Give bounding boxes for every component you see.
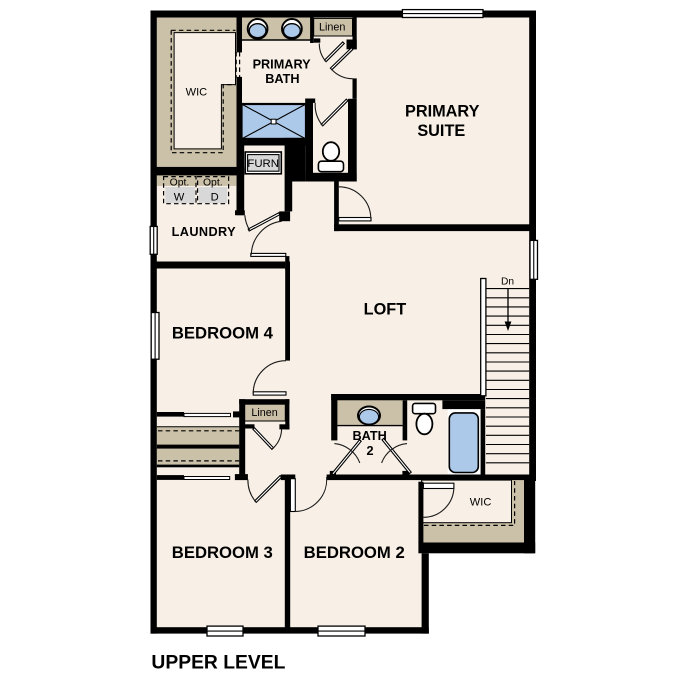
svg-text:Linen: Linen <box>319 22 345 34</box>
svg-text:2: 2 <box>366 444 373 458</box>
svg-text:W: W <box>174 191 185 203</box>
svg-text:Linen: Linen <box>251 407 277 419</box>
svg-text:Opt.: Opt. <box>203 178 223 189</box>
svg-text:WIC: WIC <box>470 496 492 508</box>
svg-text:PRIMARY: PRIMARY <box>405 102 480 120</box>
svg-text:Dn: Dn <box>501 277 514 288</box>
svg-text:BEDROOM 4: BEDROOM 4 <box>172 324 274 343</box>
svg-text:LOFT: LOFT <box>364 300 407 318</box>
svg-text:SUITE: SUITE <box>417 122 465 140</box>
svg-text:Opt.: Opt. <box>170 178 190 189</box>
svg-text:BEDROOM 2: BEDROOM 2 <box>304 543 405 562</box>
svg-text:BATH: BATH <box>352 429 386 443</box>
svg-text:WIC: WIC <box>186 87 208 99</box>
svg-text:FURN: FURN <box>247 158 279 170</box>
svg-text:BEDROOM 3: BEDROOM 3 <box>172 543 273 562</box>
svg-text:LAUNDRY: LAUNDRY <box>172 225 236 239</box>
svg-text:PRIMARY: PRIMARY <box>253 57 312 71</box>
svg-text:UPPER LEVEL: UPPER LEVEL <box>151 653 285 674</box>
svg-text:D: D <box>211 191 219 203</box>
svg-text:BATH: BATH <box>265 72 299 86</box>
